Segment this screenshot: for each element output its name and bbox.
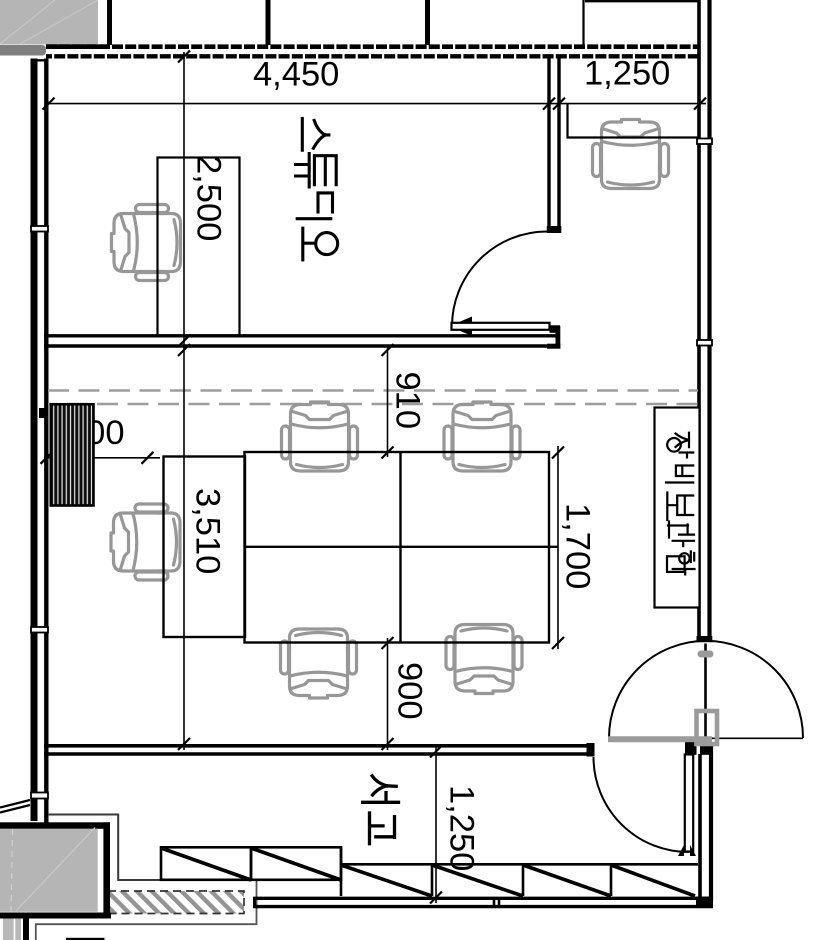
svg-text:1,250: 1,250 <box>443 785 481 871</box>
svg-text:2,500: 2,500 <box>190 155 228 241</box>
svg-text:1,700: 1,700 <box>559 503 597 589</box>
svg-text:3,510: 3,510 <box>189 488 227 574</box>
svg-text:1,250: 1,250 <box>584 55 670 93</box>
svg-text:4,450: 4,450 <box>253 56 339 94</box>
svg-text:910: 910 <box>389 372 427 430</box>
svg-text:900: 900 <box>391 662 429 720</box>
